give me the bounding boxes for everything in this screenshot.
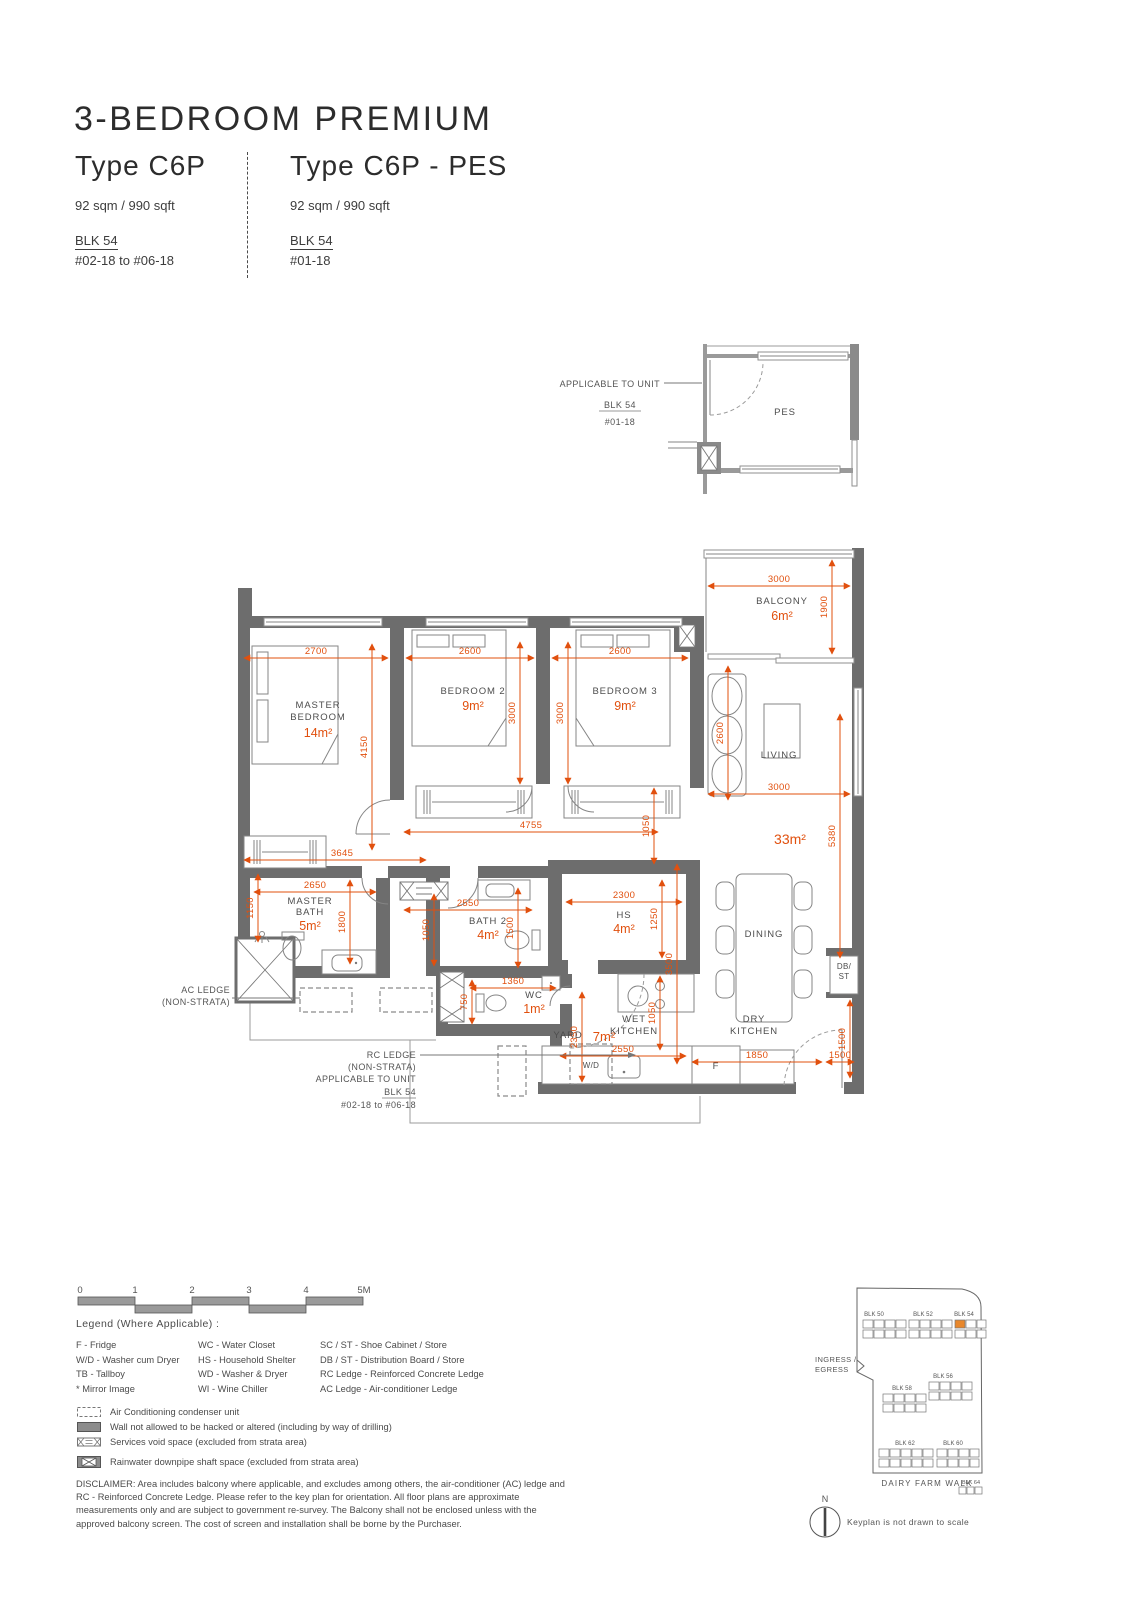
area-yard: 7m² bbox=[593, 1029, 616, 1044]
type-area: 92 sqm / 990 sqft bbox=[75, 198, 206, 213]
label-living: LIVING bbox=[761, 750, 798, 761]
main-floor-plan: 3000 2700 2600 2600 3000 4755 3645 2650 … bbox=[160, 538, 880, 1128]
dim-corridor-width: 4755 bbox=[520, 820, 542, 831]
dim-mbath-height: 1800 bbox=[337, 911, 348, 933]
ac-condenser-unit bbox=[300, 988, 352, 1012]
keyplan-blocks: BLK 50 BLK 52 BLK 54 BLK 58 BLK 56 bbox=[863, 1312, 986, 1494]
label-washer-dryer: W/D bbox=[583, 1061, 599, 1070]
rc-ledge-callout: APPLICABLE TO UNIT bbox=[316, 1074, 417, 1084]
dim-living-height: 5380 bbox=[827, 825, 838, 847]
label-yard: YARD bbox=[553, 1030, 582, 1041]
area-bedroom3: 9m² bbox=[614, 699, 636, 713]
dim-entry-width: 1500 bbox=[829, 1050, 851, 1061]
type-blk: BLK 54 bbox=[290, 233, 333, 250]
dim-bath2-width: 2550 bbox=[457, 898, 479, 909]
structural-wall-icon bbox=[76, 1421, 102, 1433]
dim-entry-height: 1500 bbox=[837, 1028, 848, 1050]
pes-callout-text: APPLICABLE TO UNIT bbox=[560, 379, 661, 389]
dim-mbr-width: 2700 bbox=[305, 646, 327, 657]
label-dry-kitchen: DRY bbox=[743, 1014, 766, 1025]
blk-label: BLK 58 bbox=[892, 1386, 912, 1392]
rc-ledge-callout: BLK 54 bbox=[384, 1087, 416, 1097]
type-name: Type C6P - PES bbox=[290, 150, 507, 182]
type-name: Type C6P bbox=[75, 150, 206, 182]
area-wc: 1m² bbox=[523, 1002, 545, 1016]
blk-label: BLK 56 bbox=[933, 1374, 953, 1380]
label-master-bath: MASTER bbox=[288, 896, 333, 907]
label-master-bedroom: MASTER bbox=[296, 700, 341, 711]
ac-ledge-callout: AC LEDGE bbox=[181, 985, 230, 995]
page-title: 3-BEDROOM PREMIUM bbox=[74, 100, 492, 139]
label-wet-kitchen: WET bbox=[622, 1014, 646, 1025]
legend-item: WI - Wine Chiller bbox=[198, 1382, 320, 1397]
dining-table bbox=[716, 874, 812, 1022]
sofa bbox=[708, 674, 746, 796]
scale-label: 4 bbox=[303, 1285, 308, 1296]
dim-br3-height: 3000 bbox=[555, 702, 566, 724]
label-hs: HS bbox=[617, 910, 632, 921]
highlighted-unit bbox=[955, 1320, 965, 1328]
dim-balcony-width: 3000 bbox=[768, 574, 790, 585]
area-hs: 4m² bbox=[613, 922, 635, 936]
label-wc: WC bbox=[525, 990, 543, 1001]
rc-ledge-callout: #02-18 to #06-18 bbox=[341, 1100, 416, 1110]
symbol-legend: Air Conditioning condenser unit Wall not… bbox=[76, 1404, 392, 1469]
area-balcony: 6m² bbox=[771, 609, 793, 623]
pes-callout-blk: BLK 54 bbox=[604, 400, 636, 410]
legend-item: F - Fridge bbox=[76, 1338, 198, 1353]
legend-col3: SC / ST - Shoe Cabinet / Store DB / ST -… bbox=[320, 1338, 484, 1396]
pes-callout-unit: #01-18 bbox=[605, 417, 635, 427]
symbol-row: Air Conditioning condenser unit bbox=[76, 1404, 392, 1419]
label-wet-kitchen: KITCHEN bbox=[610, 1026, 658, 1037]
pes-inset-door bbox=[710, 360, 763, 415]
ingress-label: INGRESS / bbox=[815, 1355, 857, 1364]
scale-bar: 0 1 2 3 4 5M bbox=[76, 1284, 376, 1318]
type-block-c6p-pes: Type C6P - PES 92 sqm / 990 sqft BLK 54 … bbox=[290, 150, 507, 268]
keyplan: BLK 50 BLK 52 BLK 54 BLK 58 BLK 56 bbox=[795, 1268, 1130, 1568]
rainwater-downpipe-icon bbox=[76, 1455, 102, 1469]
dim-mbath-width: 2650 bbox=[304, 880, 326, 891]
scale-label: 1 bbox=[132, 1285, 137, 1296]
label-dry-kitchen: KITCHEN bbox=[730, 1026, 778, 1037]
ingress-label: EGRESS bbox=[815, 1365, 849, 1374]
dim-hs-width: 2300 bbox=[613, 890, 635, 901]
area-bath2: 4m² bbox=[477, 928, 499, 942]
legend-item: RC Ledge - Reinforced Concrete Ledge bbox=[320, 1367, 484, 1382]
legend-title: Legend (Where Applicable) : bbox=[76, 1318, 646, 1330]
legend-item: TB - Tallboy bbox=[76, 1367, 198, 1382]
dim-corridor-height: 1050 bbox=[641, 815, 652, 837]
pes-inset-callout: APPLICABLE TO UNIT BLK 54 #01-18 bbox=[560, 379, 702, 427]
label-dining: DINING bbox=[745, 929, 784, 940]
area-bedroom2: 9m² bbox=[462, 699, 484, 713]
legend-item: HS - Household Shelter bbox=[198, 1353, 320, 1368]
blk-label: BLK 60 bbox=[943, 1441, 963, 1447]
legend-item: WD - Washer & Dryer bbox=[198, 1367, 320, 1382]
label-balcony: BALCONY bbox=[756, 596, 808, 607]
legend-item: AC Ledge - Air-conditioner Ledge bbox=[320, 1382, 484, 1397]
type-units: #02-18 to #06-18 bbox=[75, 253, 206, 268]
label-bedroom3: BEDROOM 3 bbox=[592, 686, 657, 697]
street-label: DAIRY FARM WALK bbox=[881, 1479, 972, 1488]
area-master-bedroom: 14m² bbox=[304, 726, 332, 740]
symbol-label: Wall not allowed to be hacked or altered… bbox=[110, 1422, 392, 1432]
label-bath2: BATH 2 bbox=[469, 916, 507, 927]
symbol-row: Rainwater downpipe shaft space (excluded… bbox=[76, 1454, 392, 1469]
pes-inset-walls bbox=[668, 344, 859, 494]
ac-condenser-icon bbox=[76, 1406, 102, 1418]
symbol-label: Air Conditioning condenser unit bbox=[110, 1407, 239, 1417]
area-master-bath: 5m² bbox=[299, 919, 321, 933]
symbol-row: Services void space (excluded from strat… bbox=[76, 1434, 392, 1449]
dim-mbr-height: 4150 bbox=[359, 736, 370, 758]
type-block-c6p: Type C6P 92 sqm / 990 sqft BLK 54 #02-18… bbox=[75, 150, 206, 268]
dim-hs-height: 1250 bbox=[649, 908, 660, 930]
scale-label: 3 bbox=[246, 1285, 251, 1296]
north-label: N bbox=[822, 1494, 829, 1504]
dim-bath2-left: 1050 bbox=[421, 919, 432, 941]
ac-condenser-unit bbox=[380, 988, 432, 1012]
type-divider bbox=[247, 152, 248, 278]
dim-living-width: 3000 bbox=[768, 782, 790, 793]
label-master-bedroom: BEDROOM bbox=[290, 712, 345, 723]
dim-wet-kitchen-height: 1050 bbox=[647, 1002, 658, 1024]
scale-bar-segments bbox=[78, 1297, 363, 1313]
floorplan-page: 3-BEDROOM PREMIUM Type C6P 92 sqm / 990 … bbox=[0, 0, 1130, 1600]
scale-label: 2 bbox=[189, 1285, 194, 1296]
symbol-row: Wall not allowed to be hacked or altered… bbox=[76, 1419, 392, 1434]
symbol-label: Services void space (excluded from strat… bbox=[110, 1437, 307, 1447]
dim-br3-width: 2600 bbox=[609, 646, 631, 657]
void-shaft bbox=[236, 938, 294, 1002]
dim-dining-height: 3500 bbox=[664, 953, 675, 975]
legend-item: * Mirror Image bbox=[76, 1382, 198, 1397]
legend-col1: F - Fridge W/D - Washer cum Dryer TB - T… bbox=[76, 1338, 198, 1396]
label-master-bath: BATH bbox=[296, 907, 324, 918]
ac-ledge-callout: (NON-STRATA) bbox=[162, 997, 230, 1007]
blk-label: BLK 52 bbox=[913, 1312, 933, 1318]
dim-balcony-height: 1900 bbox=[819, 596, 830, 618]
legend-col2: WC - Water Closet HS - Household Shelter… bbox=[198, 1338, 320, 1396]
rc-ledge-callout: RC LEDGE bbox=[367, 1050, 416, 1060]
dim-wc-height: 750 bbox=[459, 994, 470, 1011]
symbol-label: Rainwater downpipe shaft space (excluded… bbox=[110, 1457, 359, 1467]
wardrobe-master bbox=[244, 836, 326, 868]
legend-item: DB / ST - Distribution Board / Store bbox=[320, 1353, 484, 1368]
wardrobe-bedroom3 bbox=[564, 786, 680, 818]
dim-wc-width: 1360 bbox=[502, 976, 524, 987]
dim-dry-kitchen-width: 1850 bbox=[746, 1050, 768, 1061]
type-units: #01-18 bbox=[290, 253, 507, 268]
pes-room-label: PES bbox=[774, 407, 796, 418]
services-void-space bbox=[400, 882, 448, 900]
north-compass-icon: N bbox=[810, 1494, 840, 1537]
scale-label: 0 bbox=[77, 1285, 82, 1296]
legend-item: SC / ST - Shoe Cabinet / Store bbox=[320, 1338, 484, 1353]
legend-item: WC - Water Closet bbox=[198, 1338, 320, 1353]
dim-mbr-wardrobe: 3645 bbox=[331, 848, 353, 859]
label-bedroom2: BEDROOM 2 bbox=[440, 686, 505, 697]
blk-label: BLK 50 bbox=[864, 1312, 884, 1318]
pes-inset-diagram: APPLICABLE TO UNIT BLK 54 #01-18 PES bbox=[500, 330, 870, 505]
dim-br2-width: 2600 bbox=[459, 646, 481, 657]
services-void-icon bbox=[76, 1436, 102, 1448]
wardrobe-bedroom2 bbox=[416, 786, 532, 818]
label-dbst: ST bbox=[839, 972, 850, 981]
label-dbst: DB/ bbox=[837, 962, 852, 971]
blk-label: BLK 54 bbox=[954, 1312, 974, 1318]
legend-item: W/D - Washer cum Dryer bbox=[76, 1353, 198, 1368]
legend: Legend (Where Applicable) : F - Fridge W… bbox=[76, 1318, 646, 1396]
type-blk: BLK 54 bbox=[75, 233, 118, 250]
label-fridge: F bbox=[713, 1061, 720, 1072]
area-living: 33m² bbox=[774, 831, 806, 847]
disclaimer-text: DISCLAIMER: Area includes balcony where … bbox=[76, 1478, 570, 1531]
dim-br2-height: 3000 bbox=[507, 702, 518, 724]
dim-sofa: 2600 bbox=[715, 722, 726, 744]
type-area: 92 sqm / 990 sqft bbox=[290, 198, 507, 213]
scale-label: 5M bbox=[357, 1285, 370, 1296]
blk-label: BLK 62 bbox=[895, 1441, 915, 1447]
keyplan-note: Keyplan is not drawn to scale bbox=[847, 1517, 969, 1527]
rc-ledge-callout: (NON-STRATA) bbox=[348, 1062, 416, 1072]
dim-mbath-left: 1150 bbox=[245, 897, 256, 919]
